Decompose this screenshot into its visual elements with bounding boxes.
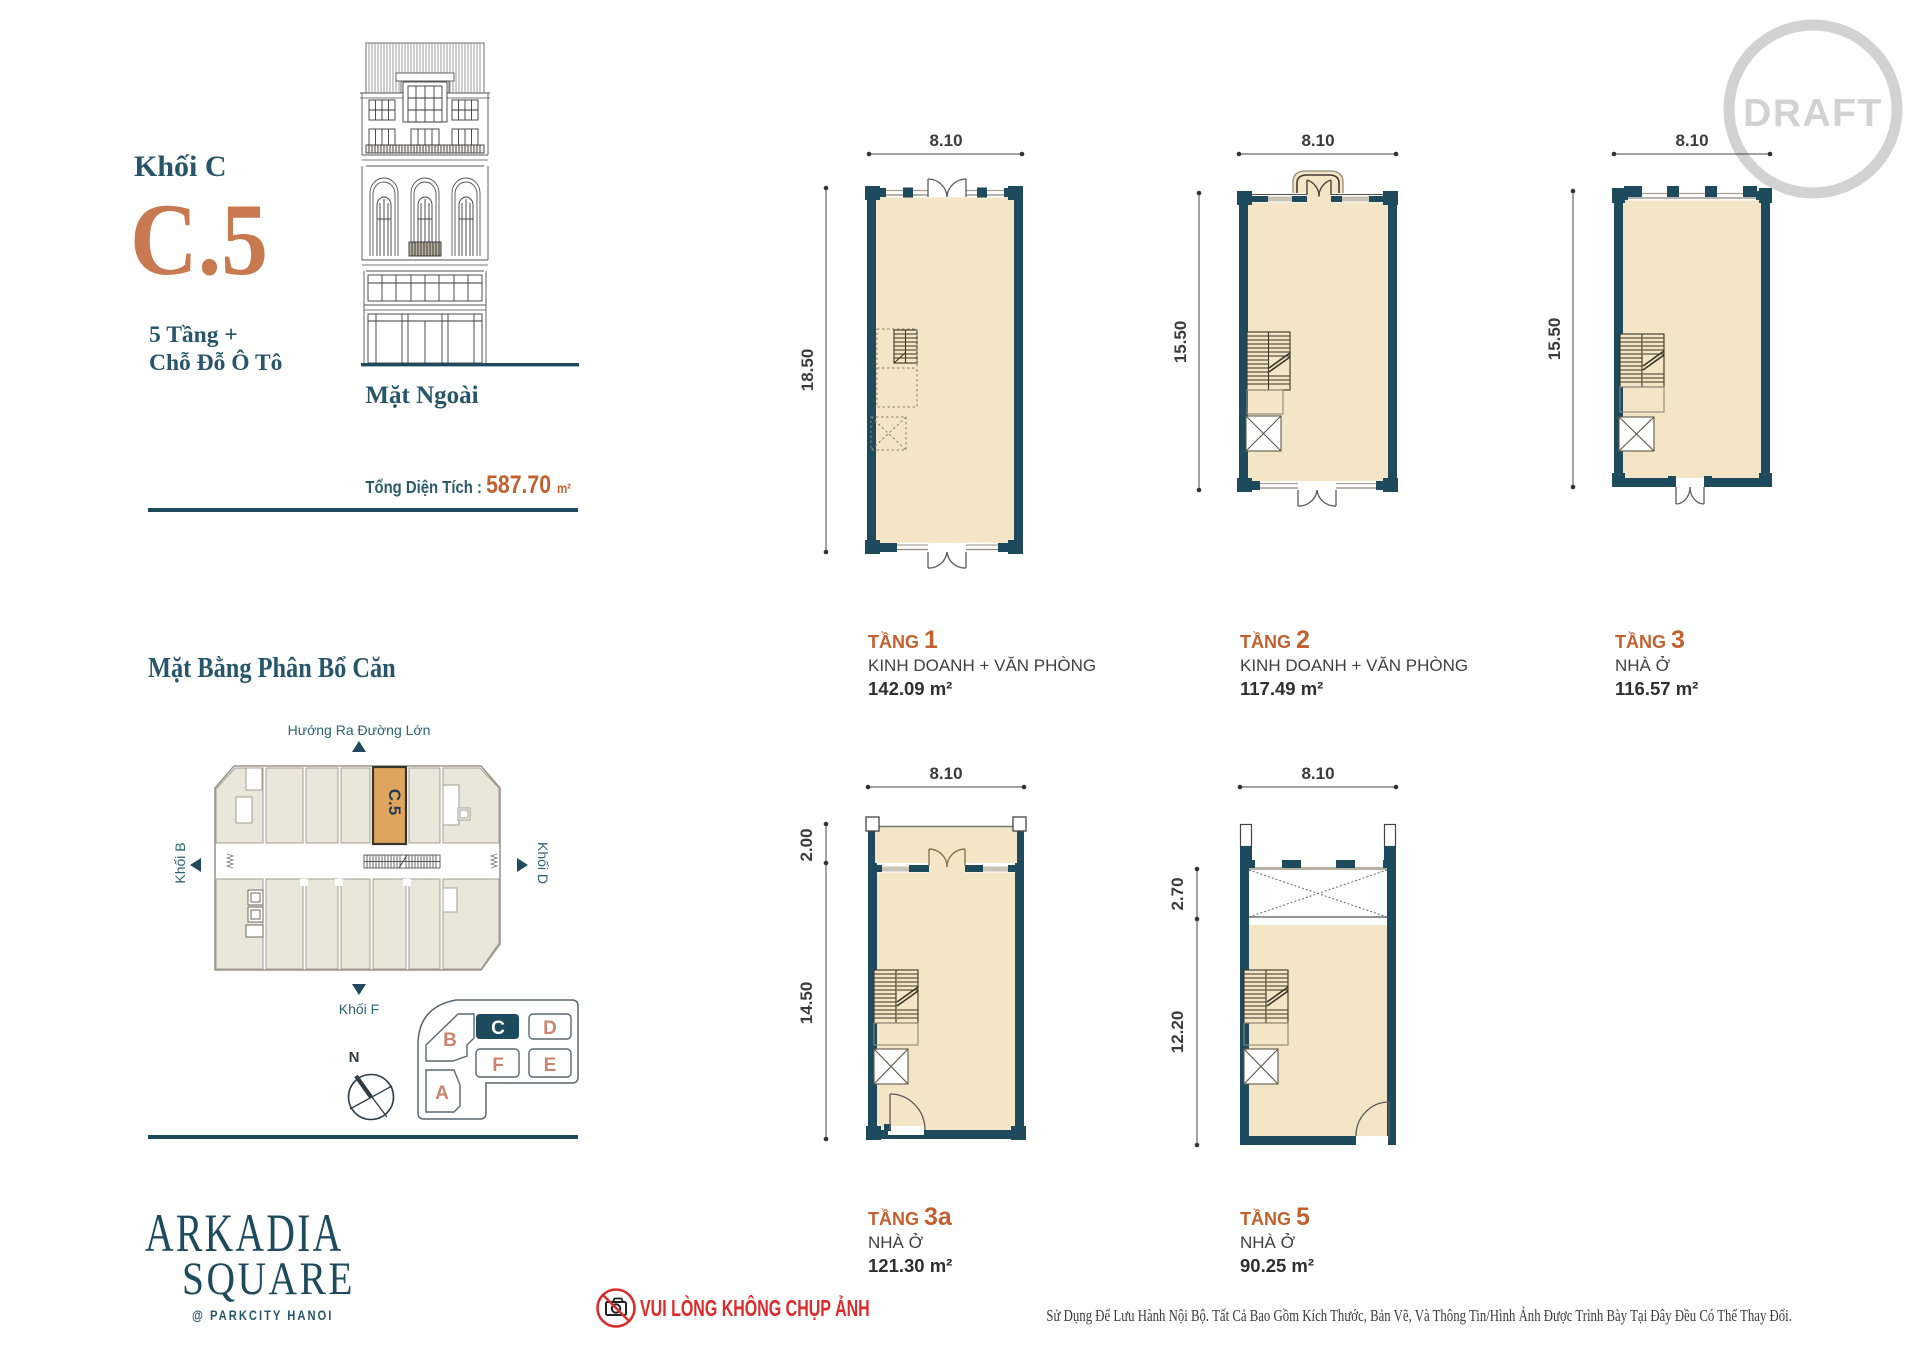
svg-text:E: E (544, 1055, 557, 1076)
svg-text:B: B (443, 1030, 457, 1051)
svg-text:8.10: 8.10 (1301, 131, 1334, 150)
svg-text:15.50: 15.50 (1545, 318, 1564, 361)
svg-text:C.5: C.5 (385, 789, 404, 815)
svg-text:8.10: 8.10 (1301, 764, 1334, 783)
svg-text:8.10: 8.10 (929, 131, 962, 150)
svg-text:D: D (543, 1018, 557, 1039)
svg-text:14.50: 14.50 (797, 982, 816, 1025)
svg-text:A: A (435, 1083, 449, 1104)
svg-text:F: F (492, 1055, 504, 1076)
svg-text:C: C (491, 1018, 505, 1039)
svg-text:2.70: 2.70 (1168, 877, 1187, 910)
svg-text:2.00: 2.00 (797, 828, 816, 861)
svg-text:8.10: 8.10 (929, 764, 962, 783)
svg-text:8.10: 8.10 (1675, 131, 1708, 150)
svg-text:12.20: 12.20 (1168, 1011, 1187, 1054)
svg-text:15.50: 15.50 (1171, 321, 1190, 364)
svg-text:18.50: 18.50 (798, 349, 817, 392)
